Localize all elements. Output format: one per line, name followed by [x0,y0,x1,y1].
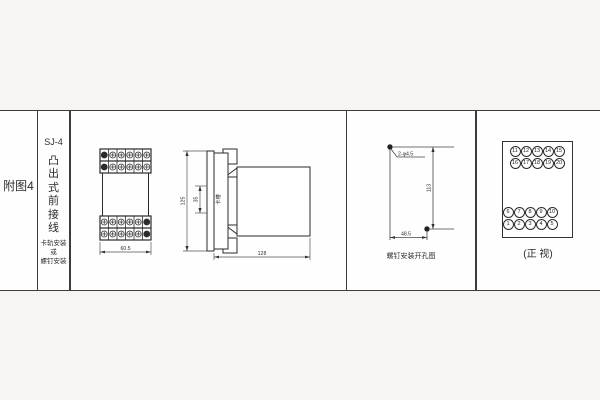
terminal-15: 15 [554,146,565,157]
terminal-9: 9 [536,207,547,218]
terminal-20: 20 [554,158,565,169]
terminal-17: 17 [521,158,532,169]
terminal-13: 13 [532,146,543,157]
terminal-2: 2 [514,219,525,230]
page: { "meta": { "background_color": "#f6f5f3… [0,0,600,400]
drawing-band: 附图4 SJ-4 凸出式前接线 卡轨安装 或 螺钉安装 60.5 [0,110,600,291]
terminal-11: 11 [510,146,521,157]
terminal-18: 18 [532,158,543,169]
terminal-12: 12 [521,146,532,157]
terminal-6: 6 [503,207,514,218]
terminal-5: 5 [547,219,558,230]
terminal-19: 19 [543,158,554,169]
terminal-1: 1 [503,219,514,230]
terminal-10: 10 [547,207,558,218]
terminal-view-caption: (正 视) [476,245,600,260]
terminal-8: 8 [525,207,536,218]
terminal-16: 16 [510,158,521,169]
terminal-7: 7 [514,207,525,218]
terminal-circles-layer: 1112131415161718192067891012345 [0,111,600,290]
terminal-14: 14 [543,146,554,157]
terminal-4: 4 [536,219,547,230]
terminal-3: 3 [525,219,536,230]
